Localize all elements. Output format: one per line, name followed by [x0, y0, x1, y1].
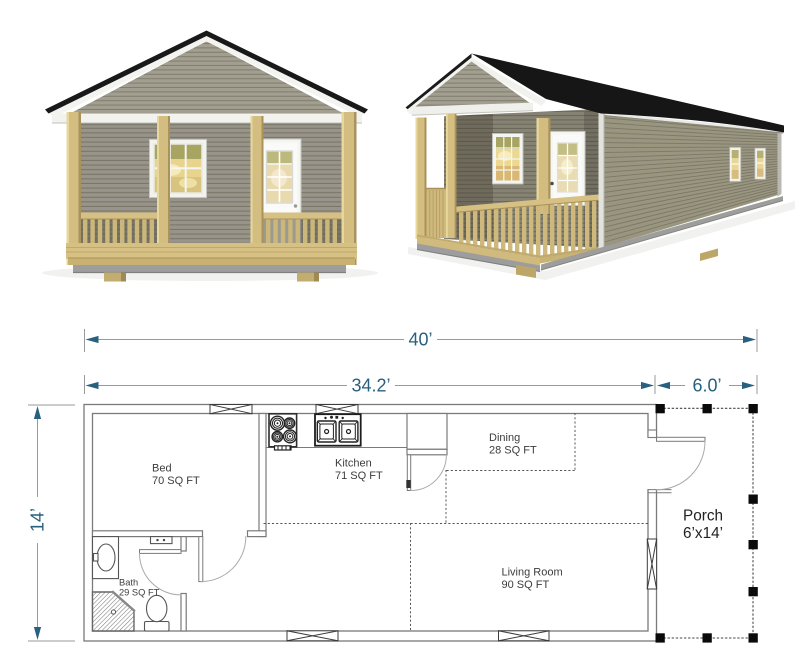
svg-text:6’x14’: 6’x14’: [683, 525, 723, 542]
svg-text:34.2’: 34.2’: [351, 376, 390, 396]
svg-text:70 SQ FT: 70 SQ FT: [152, 475, 200, 487]
svg-text:Porch: Porch: [683, 508, 723, 525]
svg-text:Bed: Bed: [152, 463, 172, 475]
svg-text:14’: 14’: [28, 508, 48, 532]
svg-text:Bath: Bath: [119, 578, 138, 588]
svg-text:40’: 40’: [408, 330, 432, 350]
svg-text:Dining: Dining: [489, 432, 520, 444]
svg-text:Living Room: Living Room: [502, 567, 563, 579]
svg-text:90 SQ FT: 90 SQ FT: [502, 579, 550, 591]
svg-text:29 SQ FT: 29 SQ FT: [119, 588, 160, 598]
svg-text:6.0’: 6.0’: [692, 376, 721, 396]
svg-text:71 SQ FT: 71 SQ FT: [335, 470, 383, 482]
svg-text:28 SQ FT: 28 SQ FT: [489, 444, 537, 456]
svg-text:Kitchen: Kitchen: [335, 458, 372, 470]
